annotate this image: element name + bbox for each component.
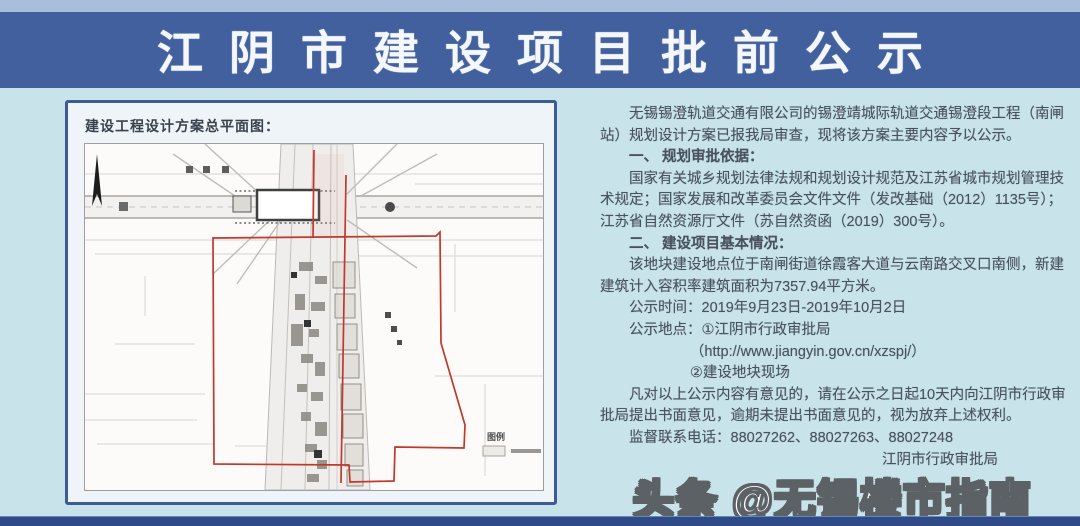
road-label-marks [186, 166, 229, 173]
section1-body: 国家有关城乡规划法律法规和规划设计规范及江苏省城市规划管理技术规定；国家发展和改… [600, 169, 1072, 234]
publicity-site-line: ②建设地块现场 [600, 363, 1072, 385]
publicity-url-line: （http://www.jiangyin.gov.cn/xzspj/） [600, 342, 1072, 364]
notice-intro: 无锡锡澄轨道交通有限公司的锡澄靖城际轨道交通锡澄段工程（南闸站）规划设计方案已报… [600, 104, 1072, 147]
tint-area [312, 154, 344, 238]
bottom-frame-bar [0, 516, 1080, 526]
notice-title-banner: 江阴市建设项目批前公示 [0, 12, 1080, 88]
top-frame-strip [0, 0, 1080, 12]
site-plan-panel: 建设工程设计方案总平面图： [65, 100, 557, 505]
legend-swatch [483, 446, 505, 456]
section1-heading: 一、 规划审批依据： [600, 147, 1072, 169]
publicity-time-line: 公示时间：2019年9月23日-2019年10月2日 [600, 298, 1072, 320]
notice-text-block: 无锡锡澄轨道交通有限公司的锡澄靖城际轨道交通锡澄段工程（南闸站）规划设计方案已报… [600, 104, 1072, 471]
site-plan-drawing: 图例 [84, 143, 544, 491]
site-plan-title: 建设工程设计方案总平面图： [85, 116, 280, 136]
phone-line: 监督联系电话：88027262、88027263、88027248 [600, 428, 1072, 450]
legend-text-blur [511, 449, 541, 453]
east-markers [385, 312, 402, 345]
feedback-paragraph: 凡对以上公示内容有意见的，请在公示之日起10天内向江阴市行政审批局提出书面意见，… [600, 385, 1072, 428]
section2-heading: 二、 建设项目基本情况： [600, 234, 1072, 256]
legend-title: 图例 [487, 431, 505, 442]
map-legend: 图例 [483, 431, 541, 456]
section2-body: 该地块建设地点位于南闸街道徐霞客大道与云南路交叉口南侧，新建建筑计入容积率建筑面… [600, 255, 1072, 298]
site-plan-svg: 图例 [85, 144, 543, 490]
page-title: 江阴市建设项目批前公示 [131, 17, 949, 83]
publicity-place-line: 公示地点：①江阴市行政审批局 [600, 320, 1072, 342]
public-notice-page: 江阴市建设项目批前公示 建设工程设计方案总平面图： [0, 0, 1080, 526]
